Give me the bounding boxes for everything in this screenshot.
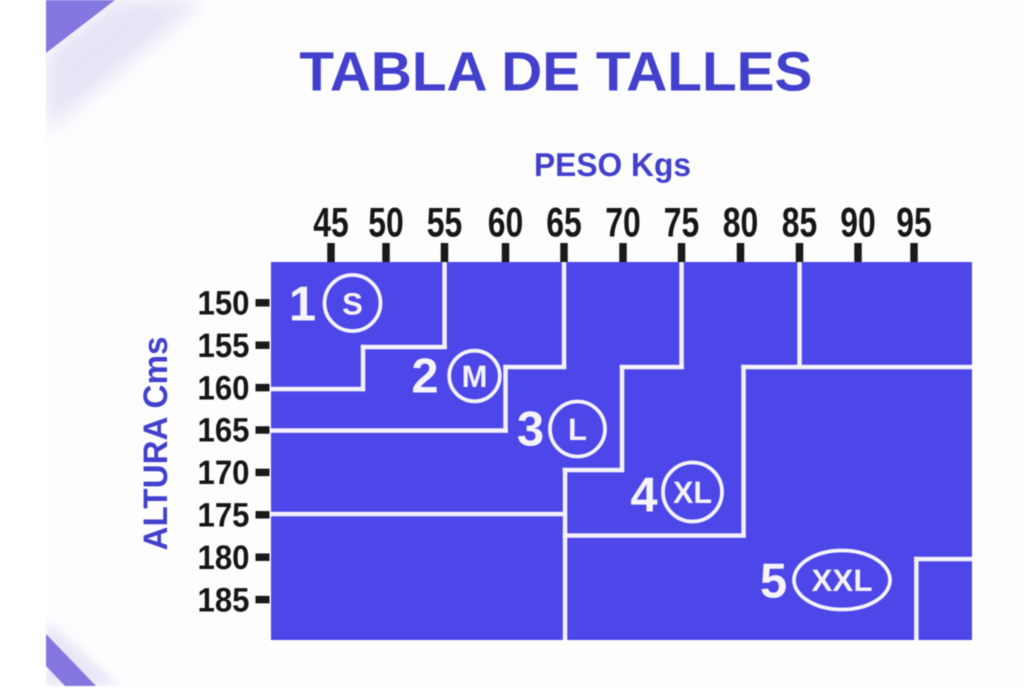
svg-text:160: 160	[198, 369, 250, 407]
svg-text:60: 60	[488, 199, 524, 246]
svg-text:4: 4	[630, 469, 657, 523]
svg-text:150: 150	[198, 285, 250, 323]
svg-text:1: 1	[289, 278, 316, 332]
svg-text:80: 80	[723, 199, 759, 246]
svg-text:L: L	[568, 412, 587, 447]
svg-text:50: 50	[368, 199, 404, 246]
svg-text:95: 95	[896, 199, 932, 246]
svg-text:3: 3	[517, 403, 544, 457]
svg-text:165: 165	[198, 412, 250, 450]
svg-text:TABLA DE TALLES: TABLA DE TALLES	[299, 41, 812, 103]
svg-text:85: 85	[782, 199, 818, 246]
svg-text:XL: XL	[673, 475, 712, 510]
svg-text:XXL: XXL	[812, 563, 873, 598]
svg-text:90: 90	[840, 199, 876, 246]
svg-text:45: 45	[313, 199, 349, 246]
svg-text:155: 155	[198, 327, 250, 365]
svg-text:75: 75	[664, 199, 700, 246]
svg-text:175: 175	[198, 497, 250, 535]
svg-text:2: 2	[411, 350, 438, 404]
svg-text:PESO Kgs: PESO Kgs	[534, 146, 691, 183]
svg-text:55: 55	[427, 199, 463, 246]
svg-text:185: 185	[198, 581, 250, 619]
svg-text:170: 170	[198, 454, 250, 492]
svg-text:S: S	[342, 287, 363, 322]
svg-text:M: M	[462, 359, 488, 394]
svg-text:ALTURA Cms: ALTURA Cms	[137, 337, 175, 551]
svg-text:5: 5	[760, 555, 787, 609]
svg-text:70: 70	[605, 199, 641, 246]
svg-text:180: 180	[198, 539, 250, 577]
svg-text:65: 65	[546, 199, 582, 246]
